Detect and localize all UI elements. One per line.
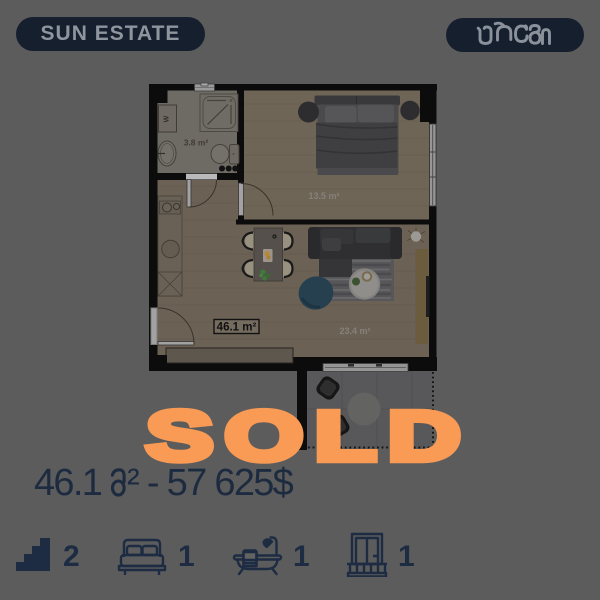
svg-text:3.8 m²: 3.8 m² [184,138,209,148]
svg-text:13.5 m²: 13.5 m² [308,191,339,201]
svg-text:W: W [164,115,171,122]
svg-text:46.1 m²: 46.1 m² [217,322,257,334]
svg-text:23.4 m²: 23.4 m² [339,326,370,336]
